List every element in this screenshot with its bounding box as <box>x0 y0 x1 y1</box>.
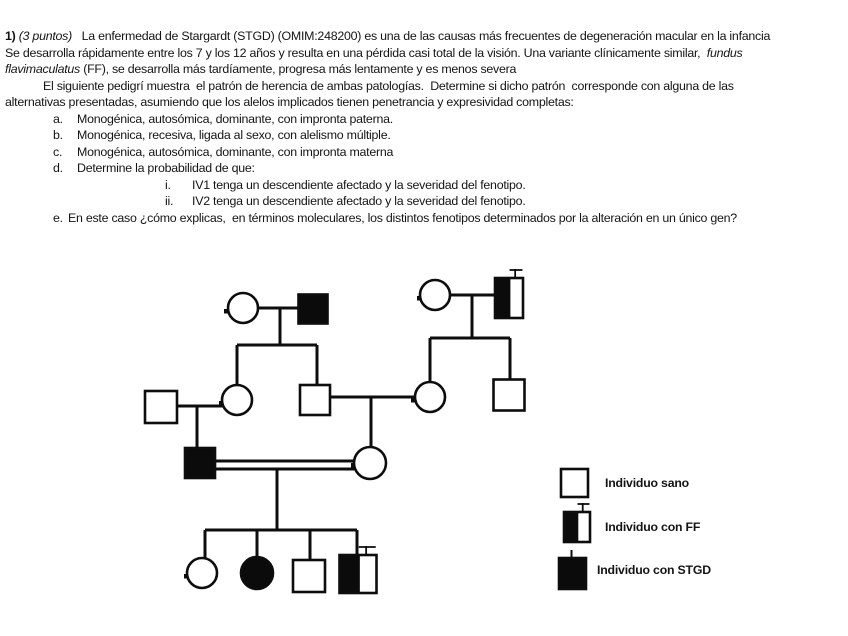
legend-label-sano: Individuo sano <box>605 476 689 491</box>
individual-IV-4-symbol-filled-half <box>341 556 360 592</box>
document-page: { "document": { "lines": [ {"ind":5,"seg… <box>0 0 848 636</box>
legend-label-stgd: Individuo con STGD <box>597 563 711 578</box>
individual-II-2-symbol <box>222 385 252 415</box>
individual-II-5-symbol <box>494 380 525 411</box>
individual-I-1-symbol <box>228 293 258 323</box>
individual-I-4-symbol-filled-half <box>496 279 510 317</box>
legend-symbol-stgd <box>559 558 586 589</box>
individual-II-4-symbol <box>415 382 445 412</box>
individual-II-1-symbol <box>145 391 177 423</box>
individual-I-2-symbol <box>299 295 328 324</box>
individual-IV-1-symbol <box>187 558 217 588</box>
individual-III-1-symbol <box>185 448 215 478</box>
individual-II-3-symbol <box>300 385 330 415</box>
individual-III-2-symbol <box>354 447 386 479</box>
legend-symbol-sano <box>561 469 588 497</box>
individual-IV-3-symbol <box>293 560 325 592</box>
individual-IV-2-symbol <box>241 557 273 589</box>
legend-symbol-ff-filled-half <box>565 513 578 541</box>
individual-I-3-symbol <box>420 280 450 310</box>
pedigree-diagram <box>0 0 848 636</box>
page: 1) (3 puntos) La enfermedad de Stargardt… <box>0 0 848 636</box>
legend-label-ff: Individuo con FF <box>605 520 700 535</box>
